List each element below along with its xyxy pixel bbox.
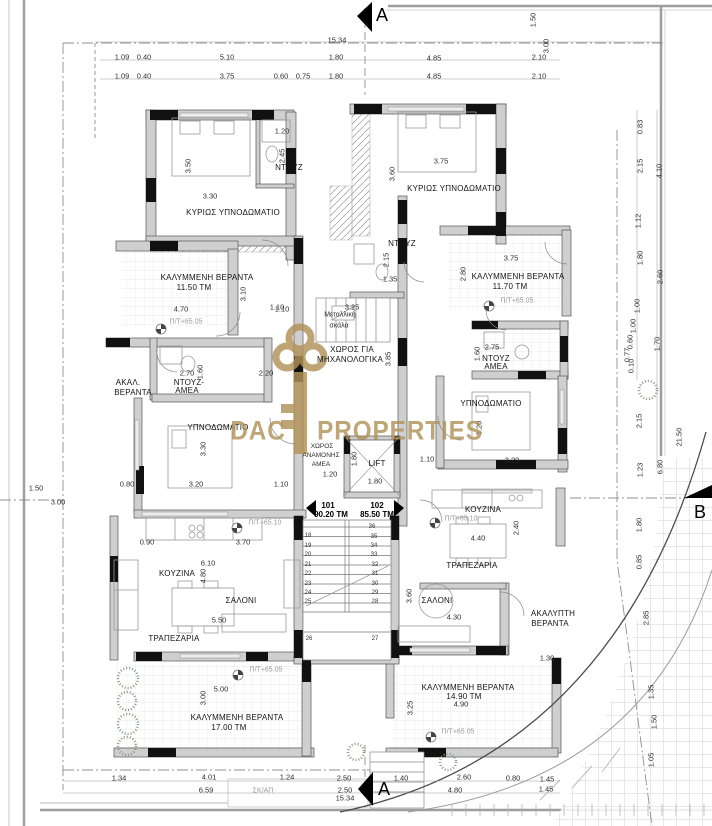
dimension-label-vertical: 3.25	[406, 701, 414, 716]
dimension-label: 1.20	[275, 127, 290, 135]
dimension-label-vertical: 1.60	[473, 347, 481, 362]
stair-step-number: 22	[305, 571, 312, 577]
dimension-label-vertical: 3.85	[384, 352, 392, 367]
room-label: ΚΑΛΥΜΜΕΝΗ ΒΕΡΑΝΤΑ	[161, 274, 254, 282]
floor-plan-drawing	[0, 0, 712, 826]
dimension-label: 1.80	[329, 53, 344, 61]
dimension-label: 1.34	[112, 774, 127, 782]
dimension-label: 2.10	[532, 72, 547, 80]
unit-label: 101	[321, 502, 334, 510]
dimension-label: 15.34	[328, 36, 347, 44]
dimension-label-vertical: 21.50	[675, 428, 683, 447]
room-label: ΒΕΡΑΝΤΑ	[531, 620, 569, 628]
dimension-label: 3.25	[345, 303, 360, 311]
dimension-label: 3.30	[203, 192, 218, 200]
floor-plan-page: AAB15.341.090.405.101.804.852.101.090.40…	[0, 0, 712, 826]
dimension-label-vertical: 1.70	[653, 337, 661, 352]
dimension-label-vertical: 1.12	[634, 214, 642, 229]
room-label: ΚΑΛΥΜΜΕΝΗ ΒΕΡΑΝΤΑ	[191, 714, 284, 722]
dimension-label-vertical: 2.60	[656, 270, 664, 285]
stair-step-number: 35	[371, 534, 378, 540]
dimension-label: 3.75	[220, 72, 235, 80]
room-label: ΑΚΑΛΥΠΤΗ	[531, 610, 575, 618]
dimension-label: 1.10	[274, 480, 289, 488]
dimension-label: 1.35	[383, 275, 398, 283]
dimension-label-vertical: 3.30	[199, 442, 207, 457]
level-annotation: Π/Τ+65.05	[250, 667, 283, 674]
dimension-label: 4.70	[174, 305, 189, 313]
dimension-label: 1.09	[115, 53, 130, 61]
level-annotation: Π/Τ+65.10	[249, 520, 282, 527]
stair-step-number: 26	[306, 636, 313, 642]
dimension-label: 3.75	[504, 254, 519, 262]
stair-step-number: 27	[372, 636, 379, 642]
room-label: ΤΡΑΠΕΖΑΡΙΑ	[446, 562, 497, 570]
unit-label: 90.20 ΤΜ	[314, 511, 348, 519]
dimension-label: 5.00	[214, 685, 229, 693]
pavement-grid	[552, 458, 712, 826]
dimension-label: 3.20	[189, 480, 204, 488]
dimension-label-vertical: 1.23	[636, 463, 644, 478]
dimension-label: 0.60	[274, 72, 289, 80]
room-label: ΚΟΥΖΙΝΑ	[465, 506, 501, 514]
dimension-label: 4.85	[427, 72, 442, 80]
dimension-label: 1.30	[540, 654, 555, 662]
dimension-label-vertical: 4.10	[655, 164, 663, 179]
watermark-text: PROPERTIES	[317, 418, 483, 445]
dimension-label: 0.40	[137, 53, 152, 61]
dimension-label-vertical: 0.85	[635, 555, 643, 570]
level-annotation: Π/Τ+65.05	[170, 319, 203, 326]
room-label: ΧΩΡΟΣ ΓΙΑ	[330, 346, 374, 354]
dimension-label-vertical: 3.00	[542, 39, 550, 54]
dimension-label: 2.75	[485, 343, 500, 351]
stair-step-number: 21	[305, 562, 312, 568]
room-label: LIFT	[368, 460, 385, 468]
section-a-top-arrow	[357, 2, 372, 32]
dimension-label-vertical: 1.35	[647, 685, 655, 700]
dimension-label-vertical: 2.15	[636, 159, 644, 174]
room-label: ΚΥΡΙΩΣ ΥΠΝΟΔΩΜΑΤΙΟ	[186, 209, 280, 217]
dimension-label: 4.80	[448, 786, 463, 794]
dimension-label-vertical: 1.50	[650, 715, 658, 730]
dimension-label: 6.59	[199, 786, 214, 794]
stair-step-number: 33	[371, 552, 378, 558]
dimension-label-vertical: 3.50	[184, 159, 192, 174]
stair-step-number: 34	[371, 543, 378, 549]
stair-step-number: 36	[369, 524, 376, 530]
stair-step-number: 18	[305, 533, 312, 539]
room-label: ΥΠΝΟΔΩΜΑΤΙΟ	[460, 400, 521, 408]
level-annotation: Π/Τ+65.10	[445, 516, 478, 523]
dimension-label-vertical: 3.60	[405, 589, 413, 604]
dimension-label: 1.50	[29, 484, 44, 492]
room-label: ΤΡΑΠΕΖΑΡΙΑ	[148, 635, 199, 643]
dimension-label-vertical: 1.05	[647, 753, 655, 768]
dimension-label: 3.20	[505, 456, 520, 464]
room-label: 11.70 ΤΜ	[493, 283, 528, 291]
section-marker-label: A	[378, 780, 390, 798]
dimension-label-vertical: 2.80	[459, 267, 467, 282]
dimension-label-vertical: 3.60	[388, 167, 396, 182]
dimension-label-vertical: 2.40	[512, 521, 520, 536]
dimension-label: 2.70	[180, 369, 195, 377]
dimension-label: 1.10	[420, 455, 435, 463]
note-label: σκάλα	[329, 323, 348, 330]
room-label: ΚΑΛΥΜΜΕΝΗ ΒΕΡΑΝΤΑ	[472, 273, 565, 281]
dimension-label: 5.50	[212, 616, 227, 624]
stair-step-number: 28	[372, 599, 379, 605]
room-label: ΣΑΛΟΝΙ	[422, 597, 453, 605]
dimension-label: 15.34	[336, 794, 355, 802]
dimension-label-vertical: 2.85	[642, 611, 650, 626]
dimension-label: 0.80	[506, 774, 521, 782]
dimension-label: 0.90	[140, 538, 155, 546]
note-label: ΑΝΑΜΟΝΗΣ	[302, 453, 339, 460]
dimension-label: 1.09	[115, 72, 130, 80]
dimension-label-vertical: 2.45	[278, 149, 286, 164]
dimension-label-vertical: 1.00	[633, 299, 641, 314]
dimension-label: 0.75	[296, 72, 311, 80]
room-label: ΑΜΕΑ	[484, 363, 507, 371]
room-label: ΝΤΟΥΖ	[388, 240, 416, 248]
room-label: ΚΥΡΙΩΣ ΥΠΝΟΔΩΜΑΤΙΟ	[407, 185, 501, 193]
stair-step-number: 25	[305, 599, 312, 605]
dimension-label-vertical: 1.80	[635, 518, 643, 533]
dimension-label-vertical: 4.80	[199, 569, 207, 584]
stair-step-number: 29	[372, 590, 379, 596]
stair-step-number: 23	[305, 581, 312, 587]
dimension-label: 0.40	[137, 72, 152, 80]
dimension-label: 5.10	[220, 53, 235, 61]
room-label: ΚΑΛΥΜΜΕΝΗ ΒΕΡΑΝΤΑ	[422, 684, 515, 692]
dimension-label: 4.01	[202, 773, 217, 781]
dimension-label: 4.30	[447, 613, 462, 621]
dimension-label-vertical: 2.15	[635, 414, 643, 429]
dimension-label-vertical: 1.50	[529, 13, 537, 28]
room-label: 17.00 ΤΜ	[211, 724, 246, 732]
dimension-label-vertical: 1.80	[636, 251, 644, 266]
dimension-label: 4.85	[427, 54, 442, 62]
dimension-label: 6.10	[201, 559, 216, 567]
dimension-label-vertical: 6.80	[656, 460, 664, 475]
dimension-label: 1.80	[329, 72, 344, 80]
room-label: ΜΗΧΑΝΟΛΟΓΙΚΑ	[317, 356, 383, 364]
dimension-label-vertical: 1.00	[629, 319, 637, 334]
level-annotation: Π/Τ+65.05	[501, 298, 534, 305]
dimension-label-vertical: 1.80	[350, 452, 358, 467]
dimension-label: 3.75	[434, 157, 449, 165]
room-label: ΚΟΥΖΙΝΑ	[159, 570, 195, 578]
dimension-label: 4.90	[454, 700, 469, 708]
dimension-label: 2.50	[337, 774, 352, 782]
room-label: ΒΕΡΑΝΤΑ	[114, 389, 152, 397]
dimension-label: 4.40	[471, 534, 486, 542]
dimension-label: 3.70	[236, 538, 251, 546]
dimension-label: 2.20	[259, 369, 274, 377]
dimension-label: 1.10	[270, 303, 285, 311]
dimension-label: 1.24	[280, 773, 295, 781]
section-marker-label: B	[694, 503, 706, 521]
dimension-label-vertical: 3.10	[239, 287, 247, 302]
dimension-label: 1.40	[394, 774, 409, 782]
stair-step-number: 24	[305, 590, 312, 596]
stair-step-number: 20	[305, 552, 312, 558]
note-label: ΑΜΕΑ	[312, 462, 330, 469]
section-marker-label: A	[376, 6, 388, 24]
dimension-label: 3.00	[51, 498, 66, 506]
stair-step-number: 31	[372, 571, 379, 577]
dimension-label-vertical: 0.83	[636, 120, 644, 135]
level-annotation: Π/Τ+65.05	[442, 729, 475, 736]
dimension-label-vertical: 3.00	[199, 691, 207, 706]
dimension-label: 1.45	[540, 775, 555, 783]
dimension-label: 2.60	[457, 773, 472, 781]
dimension-label: 1.80	[368, 477, 383, 485]
room-label: ΑΜΕΑ	[175, 387, 198, 395]
watermark-text: DAC	[230, 418, 285, 445]
dimension-label-vertical: 2.15	[382, 253, 390, 268]
room-label: ΝΤΟΥΖ	[275, 164, 303, 172]
dimension-label: 1.45	[539, 785, 554, 793]
unit-label: 85.50 ΤΜ	[360, 511, 394, 519]
unit-label: 102	[370, 502, 383, 510]
dimension-label: 0.80	[120, 480, 135, 488]
note-label: Μεταλλική	[324, 312, 356, 319]
dimension-label: 1.20	[323, 470, 338, 478]
room-label: ΣΑΛΟΝΙ	[226, 597, 257, 605]
level-annotation: ΣΚ/ΑΠ	[253, 788, 274, 795]
dimension-label: 2.10	[532, 53, 547, 61]
room-label: 11.50 ΤΜ	[177, 284, 212, 292]
stair-step-number: 32	[372, 562, 379, 568]
stair-step-number: 30	[372, 581, 379, 587]
stair-step-number: 19	[305, 543, 312, 549]
room-label: ΑΚΑΛ.	[116, 379, 141, 387]
dimension-label-vertical: 0.10	[627, 359, 635, 374]
dimension-label-vertical: 1.60	[196, 365, 204, 380]
